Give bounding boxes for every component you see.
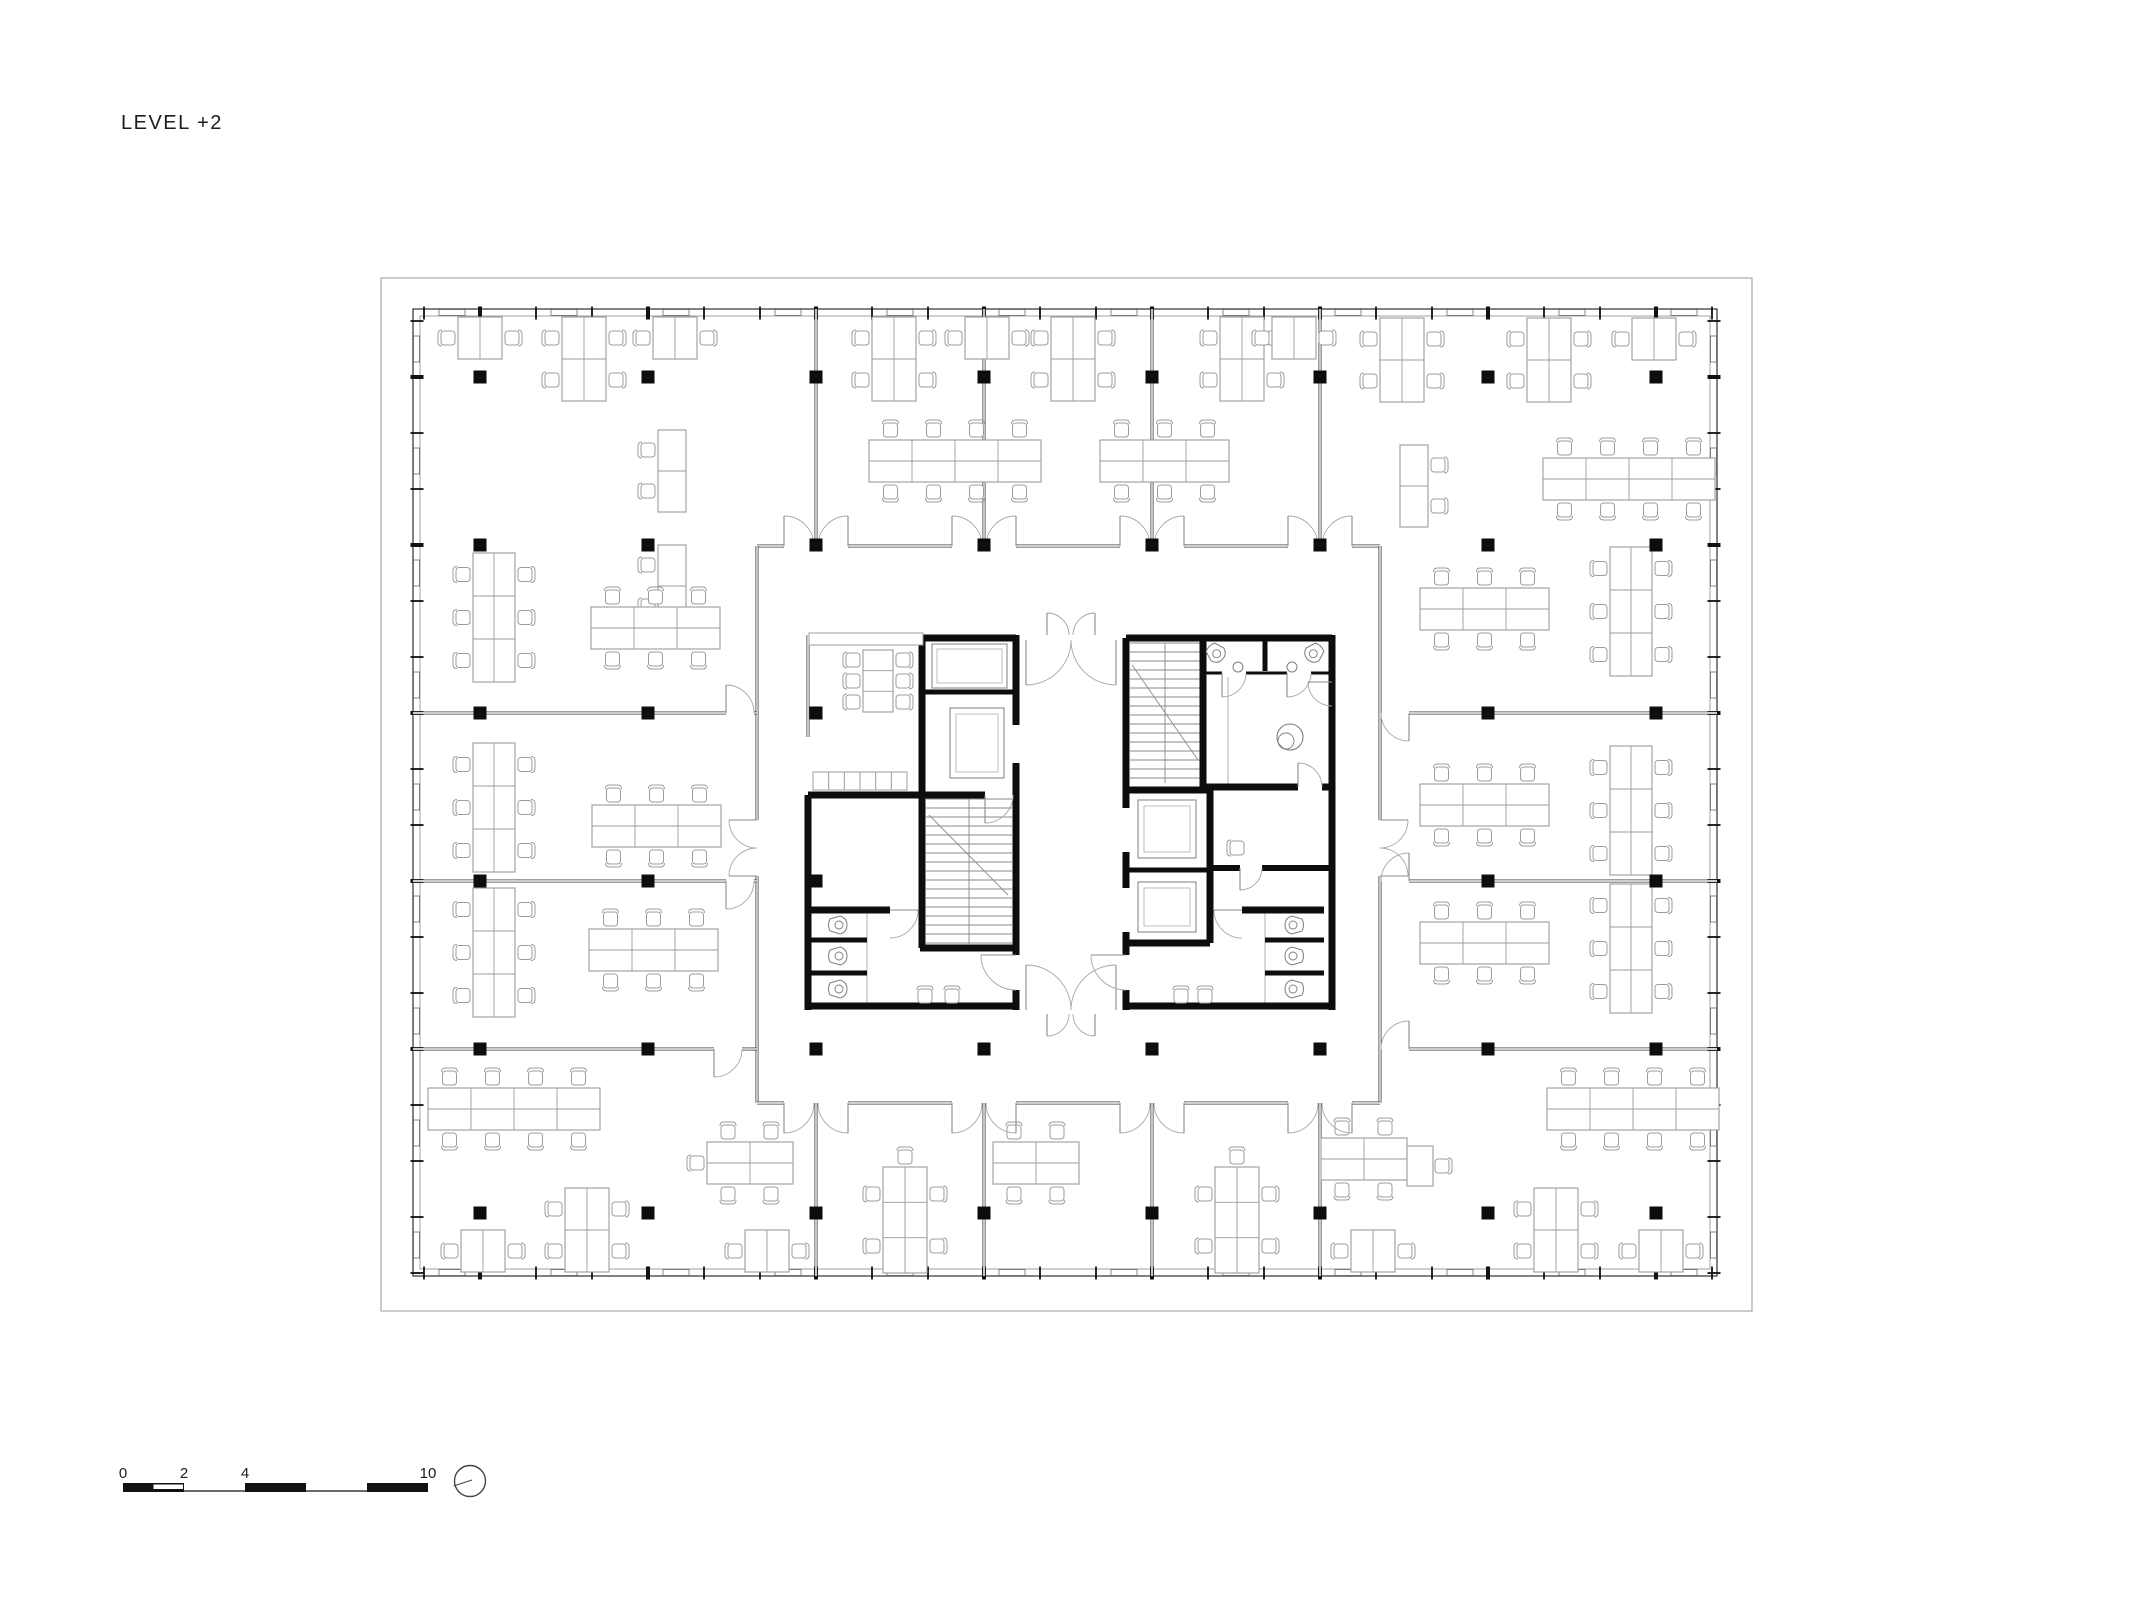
chair (969, 485, 985, 502)
chair (442, 1133, 458, 1150)
chair (1200, 420, 1216, 437)
chair (1200, 485, 1216, 502)
structural-column (1650, 1043, 1663, 1056)
toilet-fixture (1285, 980, 1304, 998)
structural-column (642, 371, 655, 384)
structural-column (1650, 539, 1663, 552)
structural-column (642, 707, 655, 720)
chair (646, 974, 662, 991)
chair (725, 1243, 742, 1259)
bench-6 (589, 909, 718, 991)
chair (1655, 647, 1672, 663)
chair-seat (1378, 1121, 1392, 1135)
north-arrow-icon (454, 1466, 486, 1497)
door (952, 1103, 982, 1133)
chair-seat (548, 1202, 562, 1216)
chair-seat (1435, 633, 1449, 647)
chair-seat (919, 373, 933, 387)
chair (919, 330, 936, 346)
chair-seat (1262, 1239, 1276, 1253)
chair (926, 485, 942, 502)
chair-seat (1335, 1183, 1349, 1197)
chair (638, 483, 655, 499)
workstation-quad (1200, 317, 1284, 401)
chair-seat (1478, 967, 1492, 981)
chair-seat (606, 652, 620, 666)
chair (1655, 898, 1672, 914)
chair-seat (1427, 332, 1441, 346)
chair-seat (945, 989, 959, 1003)
bench-6-vertical (1590, 746, 1672, 875)
scale-label: 10 (420, 1465, 437, 1482)
chair-seat (1593, 804, 1607, 818)
chair-seat (1267, 373, 1281, 387)
chair (638, 557, 655, 573)
chair-seat (792, 1244, 806, 1258)
chair-seat (1655, 648, 1669, 662)
chair (518, 902, 535, 918)
structural-column (642, 1207, 655, 1220)
chair-seat (1562, 1071, 1576, 1085)
chair-seat (1198, 1187, 1212, 1201)
chair-seat (505, 331, 519, 345)
chair (883, 485, 899, 502)
chair-seat (1201, 485, 1215, 499)
chair (1197, 986, 1213, 1003)
door (818, 1103, 848, 1133)
door-swing-arc (1287, 673, 1311, 697)
chair-seat (1098, 331, 1112, 345)
chair (700, 330, 717, 346)
chair-seat (896, 674, 910, 688)
structural-column (1650, 875, 1663, 888)
chair-seat (443, 1133, 457, 1147)
facade-vent-mark (887, 310, 913, 316)
structural-column (642, 539, 655, 552)
chair (1262, 1186, 1279, 1202)
facade-vent-mark (999, 310, 1025, 316)
chair-seat (919, 331, 933, 345)
structural-column (810, 1207, 823, 1220)
chair (1227, 840, 1244, 856)
chair (638, 442, 655, 458)
structural-column (1650, 707, 1663, 720)
structural-column (1146, 1207, 1159, 1220)
chair (609, 330, 626, 346)
chair (1012, 485, 1028, 502)
bench-6 (1420, 764, 1549, 846)
chair (692, 850, 708, 867)
chair-seat (518, 946, 532, 960)
bench-6-vertical (1590, 884, 1672, 1013)
chair (1655, 803, 1672, 819)
chair-seat (1478, 829, 1492, 843)
chair-seat (1034, 373, 1048, 387)
scale-bar-filled-segment (367, 1483, 428, 1492)
chair-seat (572, 1133, 586, 1147)
chair (1431, 457, 1448, 473)
chair-seat (649, 590, 663, 604)
facade-vent-mark (414, 1120, 420, 1146)
shower-fixture (1277, 724, 1303, 750)
workstation-quad (545, 1188, 629, 1272)
facade-vent-mark (1223, 310, 1249, 316)
chair (1643, 438, 1659, 455)
chair (969, 420, 985, 437)
door (726, 685, 754, 713)
facade-vent-mark (1335, 310, 1361, 316)
structural-column (810, 875, 823, 888)
bench-6 (1100, 420, 1229, 502)
chair-seat (443, 1071, 457, 1085)
chair (612, 1201, 629, 1217)
chair-seat (518, 611, 532, 625)
chair-seat (1435, 829, 1449, 843)
chair (605, 587, 621, 604)
facade-vent-mark (414, 336, 420, 362)
chair-seat (1517, 1244, 1531, 1258)
chair (518, 843, 535, 859)
chair-seat (1198, 989, 1212, 1003)
chair (518, 757, 535, 773)
chair-seat (641, 443, 655, 457)
workstation-pair (1252, 317, 1336, 359)
chair (896, 673, 913, 689)
chair (453, 610, 470, 626)
chair (609, 372, 626, 388)
workstation-quad (1031, 317, 1115, 401)
chair-seat (764, 1125, 778, 1139)
door-swing-arc (1288, 1103, 1318, 1133)
chair-seat (884, 423, 898, 437)
chair-seat (846, 674, 860, 688)
structural-column (1146, 371, 1159, 384)
chair (1173, 986, 1189, 1003)
bench-6 (592, 785, 721, 867)
bench-8 (869, 420, 1041, 502)
chair-seat (1521, 571, 1535, 585)
chair (1590, 846, 1607, 862)
chair-seat (609, 331, 623, 345)
door-swing-arc (1308, 682, 1332, 706)
workstation-quad (542, 317, 626, 401)
chair (1612, 331, 1629, 347)
floor-plan-drawing: 02410 (0, 0, 2133, 1600)
toilet-bowl (829, 947, 848, 965)
scale-label: 2 (180, 1465, 188, 1482)
chair-seat (1581, 1202, 1595, 1216)
chair-seat (1593, 985, 1607, 999)
chair-seat (721, 1187, 735, 1201)
chair (1031, 330, 1048, 346)
chair-seat (456, 946, 470, 960)
side-desk (1400, 445, 1448, 527)
chair (1477, 902, 1493, 919)
chair (1574, 331, 1591, 347)
bench-8 (1547, 1068, 1719, 1150)
chair (453, 653, 470, 669)
facade-vent-mark (439, 310, 465, 316)
chair (1031, 372, 1048, 388)
chair-seat (1655, 605, 1669, 619)
chair (606, 785, 622, 802)
facade-vent-mark (414, 448, 420, 474)
bench-6-vertical (453, 743, 535, 872)
toilet-bowl (1285, 916, 1304, 934)
sink (1287, 662, 1297, 672)
chair-seat (1378, 1183, 1392, 1197)
chair (518, 653, 535, 669)
door-swing-arc (1214, 910, 1242, 938)
chair (1434, 568, 1450, 585)
chair (1331, 1243, 1348, 1259)
chair (1012, 330, 1029, 346)
chair (1520, 967, 1536, 984)
door (729, 848, 757, 876)
door-swing-arc (1091, 955, 1126, 990)
door (1298, 763, 1322, 787)
door-swing-arc (818, 1103, 848, 1133)
chair (1114, 420, 1130, 437)
bench-4 (687, 1122, 793, 1204)
chair-seat (1198, 1239, 1212, 1253)
chair-seat (1648, 1071, 1662, 1085)
chair (1690, 1133, 1706, 1150)
door-swing-arc (1381, 853, 1409, 881)
chair-seat (456, 903, 470, 917)
door (1380, 848, 1408, 876)
chair-seat (1203, 373, 1217, 387)
chair (453, 757, 470, 773)
chair (1619, 1243, 1636, 1259)
chair-seat (529, 1133, 543, 1147)
chair-seat (612, 1202, 626, 1216)
toilet-bowl (829, 980, 848, 998)
chair (1477, 967, 1493, 984)
chair (528, 1133, 544, 1150)
chair-seat (518, 989, 532, 1003)
chair (1267, 372, 1284, 388)
chair-seat (1593, 942, 1607, 956)
chair-seat (898, 1150, 912, 1164)
chair-seat (896, 695, 910, 709)
chair (1377, 1183, 1393, 1200)
chair-seat (1398, 1244, 1412, 1258)
structural-column (810, 539, 823, 552)
chair (1197, 986, 1213, 1003)
chair (930, 1238, 947, 1254)
chair (1520, 764, 1536, 781)
structural-column (1482, 1207, 1495, 1220)
door-swings (714, 516, 1409, 1133)
chair (1195, 1238, 1212, 1254)
door-swing-arc (1380, 848, 1408, 876)
chair-seat (606, 590, 620, 604)
chair (720, 1122, 736, 1139)
chair-seat (927, 485, 941, 499)
chair (930, 1186, 947, 1202)
door-swing-arc (952, 1103, 982, 1133)
door (1154, 1103, 1184, 1133)
chair-seat (508, 1244, 522, 1258)
chair (545, 1243, 562, 1259)
chair (1590, 647, 1607, 663)
cabinet-row (809, 633, 923, 645)
facade-vent-mark (1711, 1008, 1717, 1034)
structural-column (810, 707, 823, 720)
chair (1590, 941, 1607, 957)
workstation-pair (1331, 1230, 1415, 1272)
door (714, 1049, 742, 1077)
chair-seat (1098, 373, 1112, 387)
chair (691, 652, 707, 669)
chair-seat (1334, 1244, 1348, 1258)
chair (1520, 633, 1536, 650)
chair-seat (1655, 804, 1669, 818)
structural-column (1146, 539, 1159, 552)
chair-seat (609, 373, 623, 387)
chair-seat (1601, 503, 1615, 517)
chair-seat (1615, 332, 1629, 346)
chair-seat (456, 801, 470, 815)
chair-seat (647, 974, 661, 988)
scale-label: 0 (119, 1465, 127, 1482)
chair (1434, 967, 1450, 984)
scale-bar-notch (154, 1485, 184, 1490)
door-swing-arc (1026, 965, 1071, 1010)
chair-seat (721, 1125, 735, 1139)
door-swing-arc (981, 955, 1016, 990)
door (1047, 1014, 1069, 1036)
facade-vent-mark (1711, 560, 1717, 586)
chair-seat (1435, 571, 1449, 585)
chair (1227, 840, 1244, 856)
chair (1581, 1201, 1598, 1217)
chair-seat (486, 1071, 500, 1085)
toilet-fixture (1285, 947, 1304, 965)
chair-seat (1435, 1159, 1449, 1173)
chair (1098, 372, 1115, 388)
door (1091, 955, 1126, 990)
facade-vent-mark (663, 1270, 689, 1276)
chair (687, 1155, 704, 1171)
door-swing-arc (1120, 1103, 1150, 1133)
bench-6 (591, 587, 720, 669)
chair (1049, 1187, 1065, 1204)
chair (1431, 498, 1448, 514)
chair-seat (1648, 1133, 1662, 1147)
chair (1514, 1243, 1531, 1259)
door (1240, 868, 1262, 890)
chair (603, 909, 619, 926)
chair (926, 420, 942, 437)
desk-surface (1407, 1146, 1433, 1186)
chair (606, 850, 622, 867)
chair (944, 986, 960, 1003)
chair (763, 1122, 779, 1139)
toilet-bowl (1285, 947, 1304, 965)
chair-seat (866, 1239, 880, 1253)
chair (1604, 1133, 1620, 1150)
facade-vent-mark (663, 310, 689, 316)
door-swing-arc (1073, 1014, 1095, 1036)
chair (1434, 633, 1450, 650)
chair-seat (1510, 332, 1524, 346)
chair (1398, 1243, 1415, 1259)
chair-seat (529, 1071, 543, 1085)
chair-seat (1574, 374, 1588, 388)
workstation-pair (1612, 318, 1696, 360)
structural-column (642, 1043, 655, 1056)
chair-seat (1605, 1133, 1619, 1147)
chair-seat (1050, 1187, 1064, 1201)
chair (852, 330, 869, 346)
toilet-bowl (1285, 980, 1304, 998)
chair-seat (649, 652, 663, 666)
chair-seat (1050, 1125, 1064, 1139)
facade-vent-mark (414, 784, 420, 810)
chair (545, 1201, 562, 1217)
chair (453, 567, 470, 583)
chair (1581, 1243, 1598, 1259)
chair (1477, 633, 1493, 650)
chair-seat (1230, 841, 1244, 855)
chair (649, 850, 665, 867)
chair (1434, 902, 1450, 919)
door-swing-arc (1047, 613, 1069, 635)
door (1073, 613, 1095, 635)
chair (518, 567, 535, 583)
chair-seat (612, 1244, 626, 1258)
chair (897, 1147, 913, 1164)
door-swing-arc (1240, 868, 1262, 890)
chair (1686, 438, 1702, 455)
chair-seat (1691, 1133, 1705, 1147)
chair (1049, 1122, 1065, 1139)
chair-seat (1593, 562, 1607, 576)
door-swing-arc (726, 881, 754, 909)
chair-seat (896, 653, 910, 667)
chair-seat (1574, 332, 1588, 346)
chair (453, 800, 470, 816)
door-swing-arc (1381, 713, 1409, 741)
chair (571, 1068, 587, 1085)
chair (1655, 760, 1672, 776)
chair-seat (970, 423, 984, 437)
chair-seat (456, 654, 470, 668)
chair-seat (650, 788, 664, 802)
chair-seat (1581, 1244, 1595, 1258)
chair (945, 330, 962, 346)
chair-seat (641, 558, 655, 572)
chair (720, 1187, 736, 1204)
scale-bar-filled-segment (245, 1483, 306, 1492)
chair-seat (1593, 648, 1607, 662)
bench-8 (428, 1068, 600, 1150)
chair (917, 986, 933, 1003)
door-swing-arc (726, 685, 754, 713)
chair (518, 610, 535, 626)
chair (1604, 1068, 1620, 1085)
facade-vent-mark (1711, 896, 1717, 922)
facade-vent-mark (414, 896, 420, 922)
scale-bar: 02410 (119, 1465, 437, 1492)
chair (1600, 503, 1616, 520)
chair (883, 420, 899, 437)
structural-column (474, 539, 487, 552)
chair-seat (1521, 633, 1535, 647)
chair (1590, 984, 1607, 1000)
